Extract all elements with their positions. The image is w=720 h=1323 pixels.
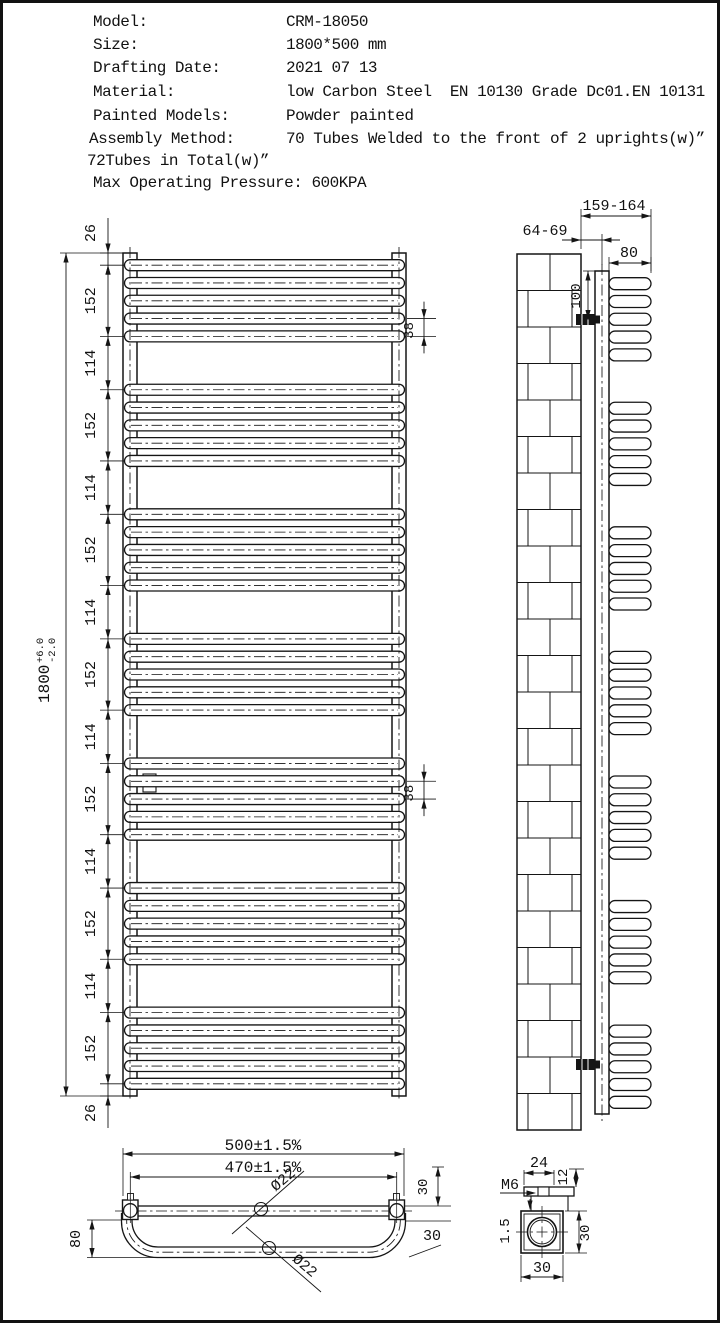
tolerance-plus: +6.0: [35, 638, 47, 663]
dim-arrow: [105, 451, 110, 461]
bracket-stud: [595, 316, 600, 324]
leader-line: [409, 1245, 441, 1257]
side-tube-loop: [609, 562, 651, 574]
dim-arrow: [105, 265, 110, 275]
dim-arrow: [609, 260, 619, 265]
side-tube-loop: [609, 847, 651, 859]
tolerance-minus: -2.0: [47, 638, 59, 663]
dim-arrow: [395, 1151, 405, 1156]
overall-value: 1800: [36, 665, 54, 703]
dim-arrow: [105, 879, 110, 889]
overall-dim-label: 1800+6.0-2.0: [35, 638, 59, 703]
spec-label: Painted Models:: [93, 107, 286, 125]
side-tube-loop: [609, 651, 651, 663]
spec-note-tubes-total: 72Tubes in Total(w)”: [87, 152, 269, 170]
dim-hook-height: 12: [556, 1169, 572, 1186]
side-tube-loop: [609, 936, 651, 948]
tube-pitch-dim: 38: [402, 785, 418, 802]
dim-arrow: [89, 1220, 94, 1230]
dim-tube-dia: Ø22: [288, 1251, 320, 1281]
side-tube-loop: [609, 687, 651, 699]
spec-row-painted: Painted Models:Powder painted: [93, 107, 413, 125]
chain-dim-152: 152: [83, 786, 100, 813]
dim-arrow: [105, 327, 110, 337]
dim-arrow: [572, 237, 582, 242]
dim-30-top: 30: [416, 1179, 432, 1196]
wall-bracket: [576, 1059, 595, 1070]
dim-arrow: [105, 461, 110, 471]
bracket-stud-m6: [538, 1187, 549, 1196]
chain-dim-114: 114: [83, 848, 100, 875]
dim-arrow: [421, 309, 426, 319]
dim-arrow: [105, 639, 110, 649]
side-tube-loop: [609, 1096, 651, 1108]
spec-value: Powder painted: [286, 107, 413, 125]
dim-square-width: 30: [533, 1260, 551, 1277]
side-tube-loop: [609, 580, 651, 592]
chain-dim-152: 152: [83, 661, 100, 688]
dim-arrow: [130, 1174, 140, 1179]
side-tube-loop: [609, 420, 651, 432]
dim-arrow: [105, 586, 110, 596]
spec-value: 1800*500 mm: [286, 36, 386, 54]
dim-arrow: [105, 825, 110, 835]
side-tube-loop: [609, 456, 651, 468]
spec-value: 2021 07 13: [286, 59, 377, 77]
spec-label: Material:: [93, 83, 286, 101]
spec-value: low Carbon Steel EN 10130 Grade Dc01.EN …: [286, 83, 705, 101]
dim-arrow: [585, 271, 590, 281]
side-tube-loop: [609, 473, 651, 485]
spec-label: Drafting Date:: [93, 59, 286, 77]
chain-dim-152: 152: [83, 287, 100, 314]
side-tube-loop: [609, 402, 651, 414]
side-tube-loop: [609, 598, 651, 610]
dim-arrow: [105, 514, 110, 524]
dim-arrow: [105, 380, 110, 390]
side-tube-loop: [609, 1043, 651, 1055]
dim-arrow: [602, 237, 612, 242]
side-tube-loop: [609, 1079, 651, 1091]
side-tube-loop: [609, 331, 651, 343]
chain-dim-152: 152: [83, 536, 100, 563]
dim-arrow: [105, 1074, 110, 1084]
dim-arrow: [63, 253, 68, 263]
dim-arrow: [105, 835, 110, 845]
dim-arrow: [105, 629, 110, 639]
dim-arrow: [527, 1201, 532, 1211]
dim-loop-depth: 80: [68, 1230, 85, 1248]
spec-label: Model:: [93, 13, 286, 31]
side-tube-loop: [609, 349, 651, 361]
side-tube-loop: [609, 313, 651, 325]
dim-arrow: [576, 1211, 581, 1221]
drawing-sheet: 2615211415211415211415211415211415211415…: [0, 0, 720, 1323]
wall-bracket: [576, 314, 595, 325]
spec-value: 70 Tubes Welded to the front of 2 uprigh…: [286, 130, 705, 148]
dim-wall-thickness: 1.5: [498, 1218, 514, 1243]
dim-arrow: [105, 336, 110, 346]
chain-dim-114: 114: [83, 474, 100, 501]
side-tube-loop: [609, 918, 651, 930]
dim-arrow: [123, 1151, 133, 1156]
dim-arrow: [105, 1096, 110, 1106]
dim-arrow: [89, 1248, 94, 1258]
dim-arrow: [105, 390, 110, 400]
side-tube-loop: [609, 438, 651, 450]
dim-arrow: [521, 1274, 531, 1279]
chain-dim-114: 114: [83, 599, 100, 626]
chain-dim-114: 114: [83, 723, 100, 750]
dim-tube-depth: 80: [620, 245, 638, 262]
chain-dim-26: 26: [83, 224, 100, 242]
chain-dim-152: 152: [83, 1035, 100, 1062]
side-tube-loop: [609, 1061, 651, 1073]
side-tube-loop: [609, 901, 651, 913]
dim-arrow: [576, 1244, 581, 1254]
spec-row-model: Model:CRM-18050: [93, 13, 368, 31]
dim-arrow: [105, 701, 110, 711]
chain-dim-114: 114: [83, 972, 100, 999]
dim-bracket-width: 24: [530, 1155, 548, 1172]
dim-arrow: [105, 1013, 110, 1023]
dim-arrow: [105, 244, 110, 254]
spec-value: CRM-18050: [286, 13, 368, 31]
spec-label: Max Operating Pressure:: [93, 174, 302, 192]
chain-dim-152: 152: [83, 412, 100, 439]
side-tube-loop: [609, 812, 651, 824]
side-tube-loop: [609, 669, 651, 681]
dim-arrow: [105, 763, 110, 773]
spec-row-pressure: Max Operating Pressure: 600KPA: [93, 174, 366, 192]
side-tube-loop: [609, 954, 651, 966]
spec-row-size: Size:1800*500 mm: [93, 36, 386, 54]
dim-arrow: [105, 959, 110, 969]
tube-pitch-dim: 38: [402, 322, 418, 339]
chain-dim-152: 152: [83, 910, 100, 937]
spec-row-material: Material:low Carbon Steel EN 10130 Grade…: [93, 83, 705, 101]
plan-curved-tube-centerline: [127, 1213, 401, 1252]
dim-arrow: [554, 1274, 564, 1279]
spec-value: 600KPA: [311, 174, 366, 192]
dim-wall-to-upright: 64-69: [522, 223, 567, 240]
side-tube-loop: [609, 829, 651, 841]
dim-arrow: [105, 950, 110, 960]
side-tube-loop: [609, 972, 651, 984]
dim-arrow: [105, 1003, 110, 1013]
spec-label: Size:: [93, 36, 286, 54]
dim-thread-label: M6: [501, 1177, 519, 1194]
bracket-stud: [595, 1061, 600, 1069]
side-tube-loop: [609, 295, 651, 307]
dim-arrow: [105, 888, 110, 898]
dim-arrow: [105, 710, 110, 720]
dim-arrow: [105, 754, 110, 764]
side-tube-loop: [609, 794, 651, 806]
side-tube-loop: [609, 705, 651, 717]
dim-arrow: [421, 336, 426, 346]
dim-wall-to-front: 159-164: [582, 198, 645, 215]
dim-arrow: [105, 505, 110, 515]
dim-30-bottom: 30: [423, 1228, 441, 1245]
side-tube-loop: [609, 545, 651, 557]
dim-arrow: [573, 1178, 578, 1188]
dim-arrow: [642, 260, 652, 265]
dim-arrow: [435, 1197, 440, 1207]
dim-arrow: [105, 576, 110, 586]
chain-dim-26: 26: [83, 1104, 100, 1122]
dim-overall-width: 500±1.5%: [225, 1137, 302, 1155]
spec-row-date: Drafting Date:2021 07 13: [93, 59, 377, 77]
dim-arrow: [421, 799, 426, 809]
dim-arrow: [435, 1167, 440, 1177]
chain-dim-114: 114: [83, 350, 100, 377]
side-tube-loop: [609, 1025, 651, 1037]
technical-drawing: 2615211415211415211415211415211415211415…: [3, 3, 720, 1323]
dim-bracket-offset: 100: [569, 283, 585, 308]
spec-row-assembly: Assembly Method:70 Tubes Welded to the f…: [89, 130, 705, 148]
side-tube-loop: [609, 723, 651, 735]
dim-arrow: [421, 772, 426, 782]
side-tube-loop: [609, 776, 651, 788]
side-tube-loop: [609, 527, 651, 539]
spec-label: Assembly Method:: [89, 130, 286, 148]
side-tube-loop: [609, 278, 651, 290]
dim-arrow: [63, 1086, 68, 1096]
dim-square-height: 30: [578, 1225, 594, 1242]
dim-arrow: [573, 1169, 578, 1179]
dim-arrow: [387, 1174, 397, 1179]
